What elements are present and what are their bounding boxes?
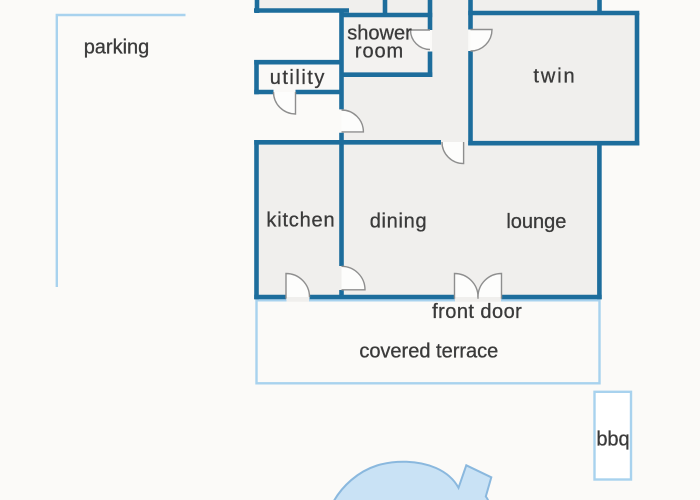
svg-text:lounge: lounge [506,211,566,233]
svg-text:twin: twin [533,66,576,88]
svg-text:covered terrace: covered terrace [359,341,498,363]
svg-text:bbq: bbq [596,429,629,451]
svg-text:dining: dining [370,211,428,233]
svg-text:front door: front door [432,301,522,323]
svg-text:room: room [355,41,404,63]
svg-text:parking: parking [84,37,150,59]
svg-text:kitchen: kitchen [266,210,335,232]
svg-text:utility: utility [270,67,326,89]
